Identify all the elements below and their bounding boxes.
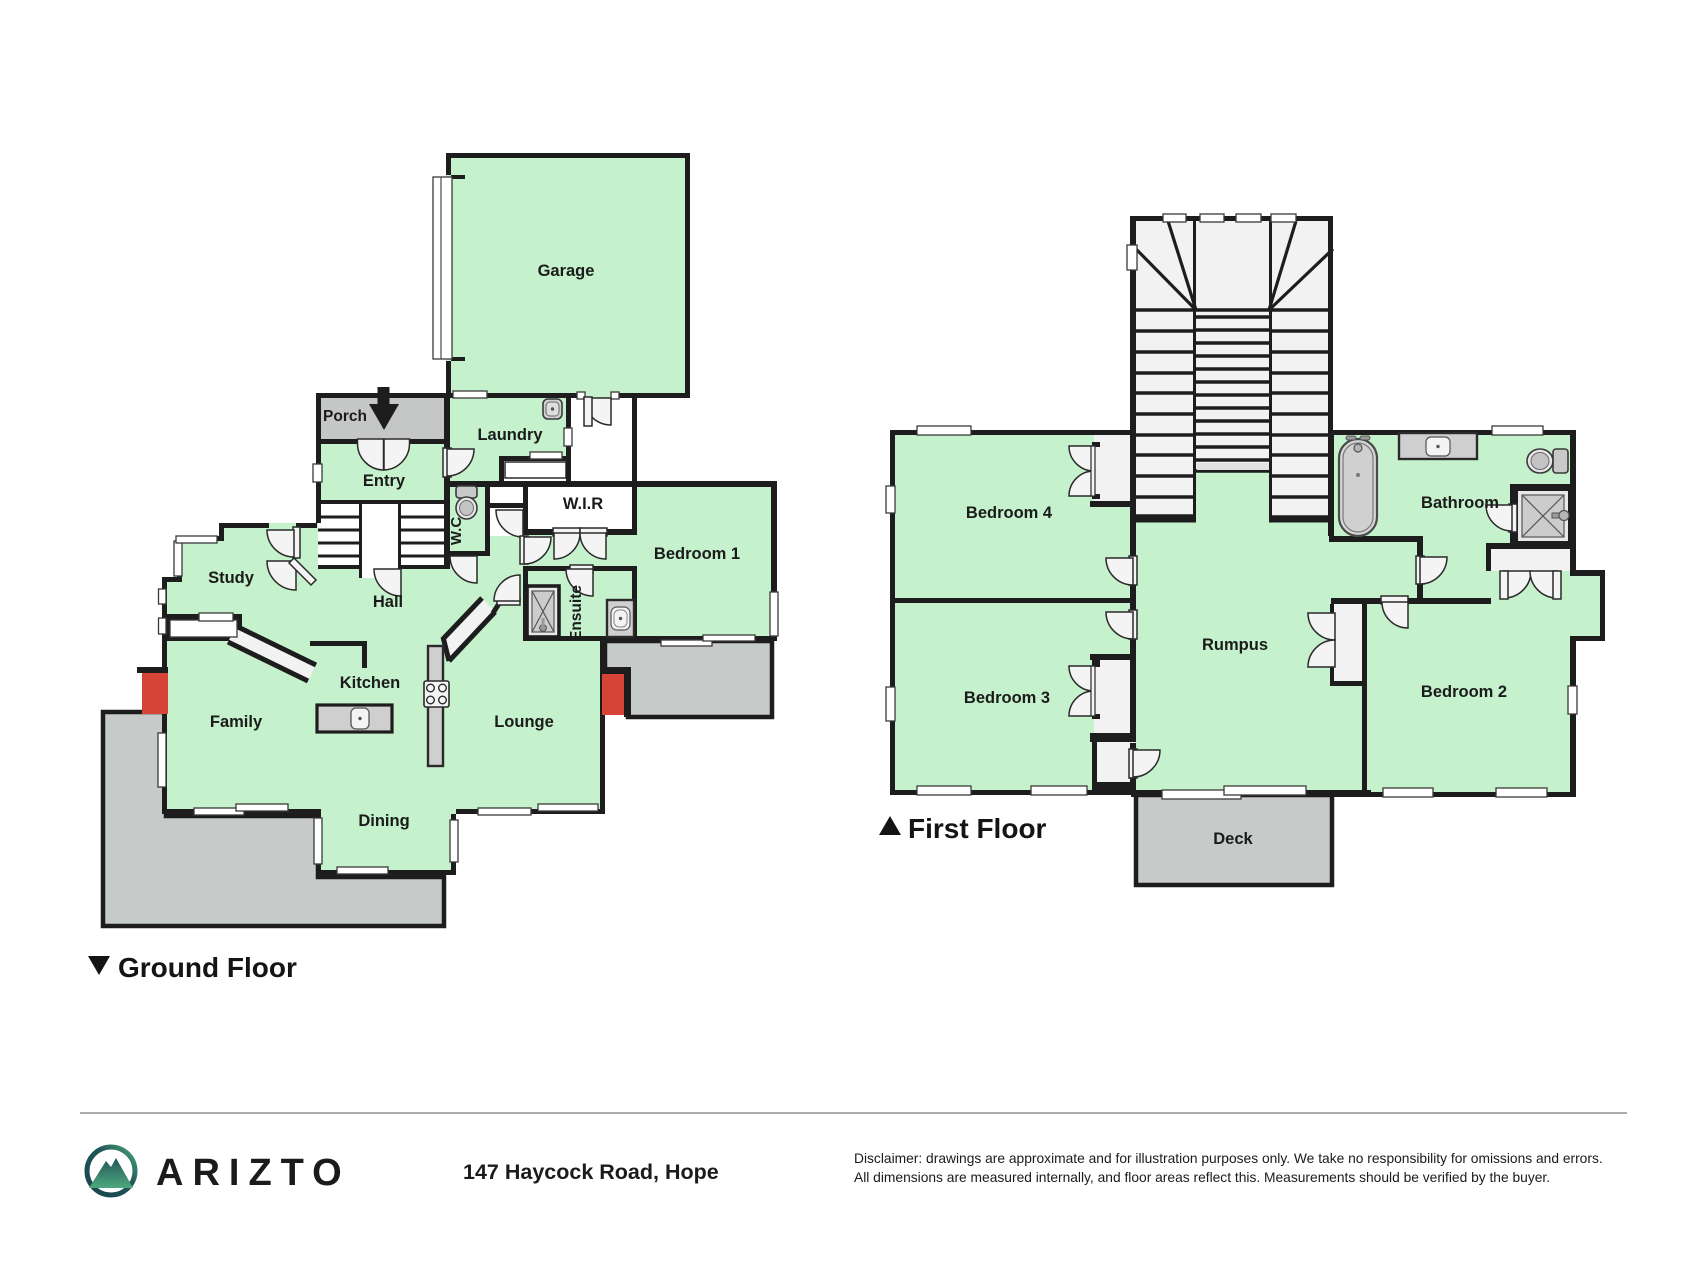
svg-text:Garage: Garage [538,262,595,280]
svg-text:Bedroom 1: Bedroom 1 [654,545,740,563]
svg-text:Ground Floor: Ground Floor [118,952,297,983]
svg-text:Hall: Hall [373,593,403,611]
svg-text:Kitchen: Kitchen [340,674,401,692]
svg-text:ARIZTO: ARIZTO [156,1152,351,1194]
svg-text:W.C: W.C [448,517,465,545]
svg-text:Bathroom: Bathroom [1421,494,1499,512]
svg-text:W.I.R: W.I.R [563,495,603,513]
svg-text:Porch: Porch [323,408,367,425]
svg-text:Entry: Entry [363,472,406,490]
svg-text:First Floor: First Floor [908,813,1047,844]
svg-text:147 Haycock Road, Hope: 147 Haycock Road, Hope [463,1160,719,1184]
svg-text:Deck: Deck [1213,830,1253,848]
svg-text:All dimensions are measured in: All dimensions are measured internally, … [854,1170,1550,1185]
svg-text:Dining: Dining [358,812,409,830]
svg-text:Bedroom 3: Bedroom 3 [964,689,1050,707]
svg-text:Family: Family [210,713,263,731]
svg-text:Disclaimer: drawings are appro: Disclaimer: drawings are approximate and… [854,1151,1603,1166]
svg-text:Lounge: Lounge [494,713,554,731]
svg-text:Laundry: Laundry [477,426,543,444]
svg-text:Bedroom 2: Bedroom 2 [1421,683,1507,701]
svg-text:Study: Study [208,569,255,587]
svg-text:Ensuite: Ensuite [568,585,585,641]
svg-text:Rumpus: Rumpus [1202,636,1268,654]
svg-text:Bedroom 4: Bedroom 4 [966,504,1053,522]
